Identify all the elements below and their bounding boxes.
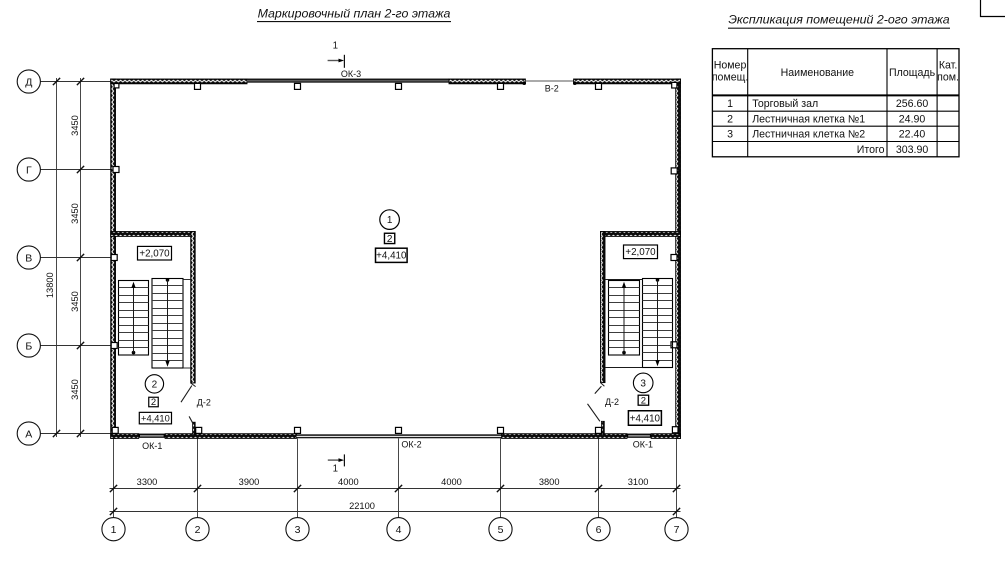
- svg-text:3450: 3450: [70, 115, 80, 136]
- svg-text:2: 2: [727, 114, 733, 126]
- svg-text:1: 1: [333, 41, 338, 52]
- svg-text:2: 2: [195, 524, 201, 536]
- svg-text:+2,070: +2,070: [139, 249, 170, 260]
- svg-text:1: 1: [727, 98, 733, 110]
- svg-text:ОК-3: ОК-3: [341, 69, 361, 79]
- svg-text:Торговый зал: Торговый зал: [752, 98, 818, 110]
- svg-text:+4,410: +4,410: [141, 413, 170, 423]
- svg-text:2: 2: [387, 234, 393, 245]
- svg-text:4000: 4000: [338, 477, 359, 487]
- svg-text:3450: 3450: [70, 291, 80, 312]
- svg-text:24.90: 24.90: [899, 114, 926, 126]
- svg-text:3100: 3100: [628, 477, 649, 487]
- svg-text:6: 6: [596, 524, 602, 536]
- svg-text:Д-2: Д-2: [605, 397, 619, 407]
- svg-text:1: 1: [111, 524, 117, 536]
- svg-text:22.40: 22.40: [899, 129, 926, 141]
- svg-text:1: 1: [387, 215, 393, 226]
- svg-text:13800: 13800: [45, 272, 55, 298]
- svg-text:Экспликация помещений 2-ого эт: Экспликация помещений 2-ого этажа: [728, 13, 949, 27]
- svg-text:3300: 3300: [137, 477, 158, 487]
- svg-text:3: 3: [640, 378, 646, 389]
- svg-text:Итого: Итого: [857, 144, 885, 156]
- svg-text:А: А: [25, 428, 32, 440]
- svg-text:помещ.: помещ.: [712, 72, 748, 84]
- svg-text:пом.: пом.: [937, 72, 959, 84]
- svg-text:+4,410: +4,410: [630, 413, 661, 424]
- svg-text:4: 4: [396, 524, 402, 536]
- svg-text:Г: Г: [26, 164, 32, 176]
- svg-text:+2,070: +2,070: [625, 247, 656, 258]
- svg-text:ОК-1: ОК-1: [142, 441, 162, 451]
- svg-text:3: 3: [295, 524, 301, 536]
- svg-text:Наименование: Наименование: [781, 67, 855, 79]
- svg-text:7: 7: [674, 524, 680, 536]
- svg-text:В: В: [25, 252, 32, 264]
- svg-text:2: 2: [641, 395, 646, 406]
- svg-text:Кат.: Кат.: [939, 60, 957, 72]
- svg-text:5: 5: [498, 524, 504, 536]
- svg-text:Номер: Номер: [714, 60, 747, 72]
- svg-text:256.60: 256.60: [896, 98, 929, 110]
- svg-text:Площадь: Площадь: [889, 67, 936, 79]
- svg-text:Д: Д: [25, 76, 32, 88]
- svg-text:3: 3: [727, 129, 733, 141]
- svg-text:2: 2: [152, 379, 158, 390]
- svg-text:Б: Б: [25, 340, 32, 352]
- svg-text:Маркировочный план 2-го этажа: Маркировочный план 2-го этажа: [258, 7, 451, 21]
- svg-text:303.90: 303.90: [896, 144, 929, 156]
- svg-text:3800: 3800: [539, 477, 560, 487]
- svg-text:3900: 3900: [239, 477, 260, 487]
- svg-text:Д-2: Д-2: [197, 398, 211, 408]
- svg-text:ОК-1: ОК-1: [633, 440, 653, 450]
- svg-text:ОК-2: ОК-2: [401, 440, 421, 450]
- svg-text:2: 2: [151, 397, 156, 408]
- svg-text:Лестничная клетка №1: Лестничная клетка №1: [752, 114, 865, 126]
- svg-text:4000: 4000: [441, 477, 462, 487]
- svg-text:3450: 3450: [70, 379, 80, 400]
- svg-text:В-2: В-2: [545, 84, 559, 94]
- svg-text:1: 1: [333, 464, 338, 475]
- svg-text:3450: 3450: [70, 203, 80, 224]
- svg-text:22100: 22100: [349, 501, 375, 511]
- svg-text:+4,410: +4,410: [376, 251, 407, 262]
- svg-text:Лестничная клетка №2: Лестничная клетка №2: [752, 129, 865, 141]
